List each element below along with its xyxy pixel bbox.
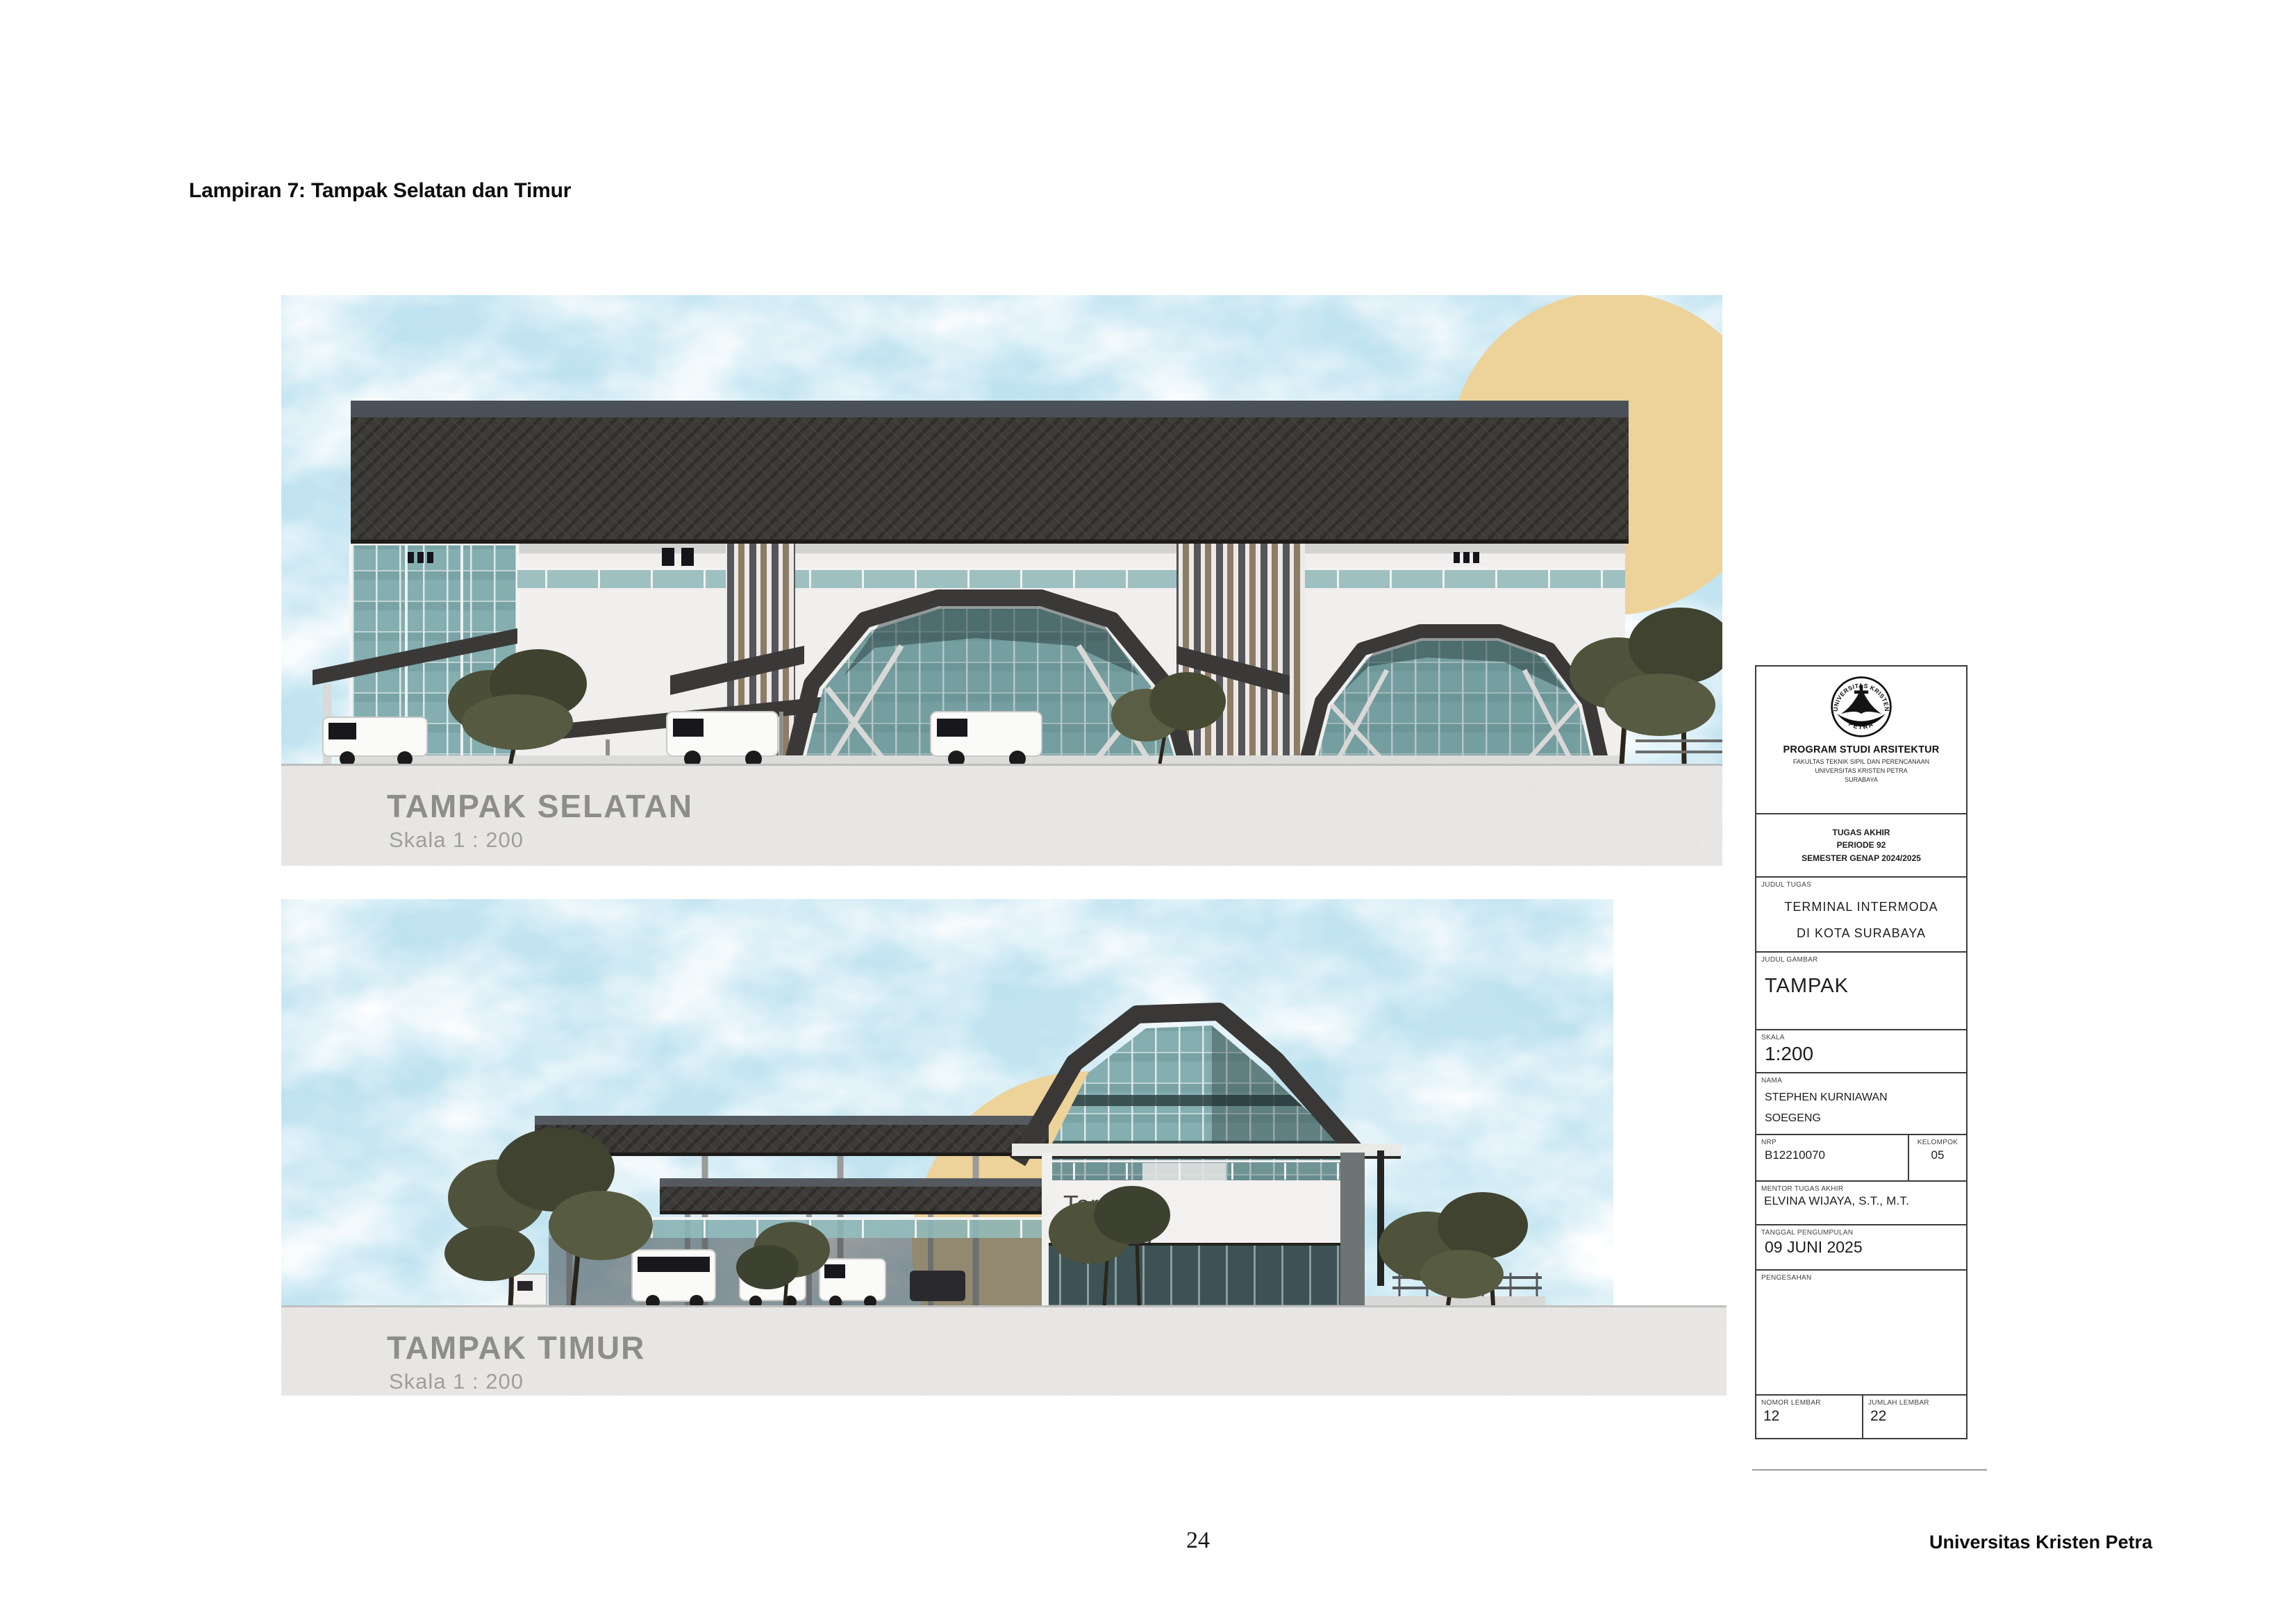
judul-tugas-line-2: DI KOTA SURABAYA xyxy=(1756,921,1966,947)
assignment-cell: TUGAS AKHIR PERIODE 92 SEMESTER GENAP 20… xyxy=(1756,813,1966,876)
pengesahan-label: PENGESAHAN xyxy=(1756,1271,1966,1282)
mentor-cell: MENTOR TUGAS AKHIR ELVINA WIJAYA, S.T., … xyxy=(1756,1180,1966,1224)
nama-cell: NAMA STEPHEN KURNIAWAN SOEGENG xyxy=(1756,1072,1966,1134)
nrp-label: NRP xyxy=(1756,1135,1908,1146)
nama-label: NAMA xyxy=(1756,1073,1966,1085)
nrp-value: B12210070 xyxy=(1765,1148,1908,1162)
footer-university-name: Universitas Kristen Petra xyxy=(1929,1532,2158,1553)
judul-gambar-label: JUDUL GAMBAR xyxy=(1756,953,1966,964)
tanggal-label: TANGGAL PENGUMPULAN xyxy=(1756,1225,1966,1237)
title-block-underline xyxy=(1752,1469,1987,1471)
judul-tugas-label: JUDUL TUGAS xyxy=(1756,878,1966,889)
nomor-lembar-label: NOMOR LEMBAR xyxy=(1756,1396,1862,1407)
south-elevation-drawing: TAMPAK SELATAN Skala 1 : 200 xyxy=(281,295,1722,866)
mentor-value: ELVINA WIJAYA, S.T., M.T. xyxy=(1764,1194,1966,1208)
kelompok-label: KELOMPOK xyxy=(1909,1135,1966,1146)
assignment-line-2: PERIODE 92 xyxy=(1756,839,1966,852)
kelompok-value: 05 xyxy=(1909,1148,1966,1162)
mentor-label: MENTOR TUGAS AKHIR xyxy=(1756,1182,1966,1193)
tanggal-value: 09 JUNI 2025 xyxy=(1765,1238,1966,1257)
pengesahan-cell: PENGESAHAN xyxy=(1756,1269,1966,1394)
judul-gambar-cell: JUDUL GAMBAR TAMPAK xyxy=(1756,951,1966,1029)
tanggal-cell: TANGGAL PENGUMPULAN 09 JUNI 2025 xyxy=(1756,1224,1966,1269)
assignment-line-3: SEMESTER GENAP 2024/2025 xyxy=(1756,852,1966,865)
judul-gambar-value: TAMPAK xyxy=(1765,975,1966,998)
judul-tugas-line-1: TERMINAL INTERMODA xyxy=(1756,894,1966,921)
title-block: UNIVERSITAS KRISTEN PETRA PROGRAM STUDI … xyxy=(1755,665,1968,1439)
page-heading: Lampiran 7: Tampak Selatan dan Timur xyxy=(189,179,571,203)
faculty-line-3: SURABAYA xyxy=(1756,776,1966,785)
east-elevation-drawing: Terminal Bratang xyxy=(281,899,1727,1396)
jumlah-lembar-cell: JUMLAH LEMBAR 22 xyxy=(1862,1396,1966,1438)
east-title: TAMPAK TIMUR xyxy=(387,1330,645,1366)
judul-tugas-cell: JUDUL TUGAS TERMINAL INTERMODA DI KOTA S… xyxy=(1756,876,1966,951)
nomor-lembar-value: 12 xyxy=(1763,1408,1862,1425)
nama-line-2: SOEGENG xyxy=(1765,1108,1966,1129)
faculty-line-2: UNIVERSITAS KRISTEN PETRA xyxy=(1756,767,1966,776)
jumlah-lembar-value: 22 xyxy=(1870,1408,1966,1425)
east-scale: Skala 1 : 200 xyxy=(389,1369,524,1393)
faculty-line-1: FAKULTAS TEKNIK SIPIL DAN PERENCANAAN xyxy=(1756,757,1966,767)
skala-label: SKALA xyxy=(1756,1030,1966,1041)
main-roof xyxy=(351,401,1629,544)
page-number: 24 xyxy=(1174,1527,1222,1554)
skala-value: 1:200 xyxy=(1765,1043,1966,1065)
kelompok-cell: KELOMPOK 05 xyxy=(1908,1135,1966,1180)
south-title: TAMPAK SELATAN xyxy=(387,788,693,824)
title-block-header: UNIVERSITAS KRISTEN PETRA PROGRAM STUDI … xyxy=(1756,667,1966,813)
skala-cell: SKALA 1:200 xyxy=(1756,1029,1966,1072)
south-scale: Skala 1 : 200 xyxy=(389,828,524,852)
nrp-cell: NRP B12210070 xyxy=(1756,1135,1908,1180)
nomor-lembar-cell: NOMOR LEMBAR 12 xyxy=(1756,1396,1862,1438)
universitas-kristen-petra-logo: UNIVERSITAS KRISTEN PETRA xyxy=(1829,675,1893,739)
nama-line-1: STEPHEN KURNIAWAN xyxy=(1765,1087,1966,1108)
program-title: PROGRAM STUDI ARSITEKTUR xyxy=(1756,744,1966,755)
assignment-line-1: TUGAS AKHIR xyxy=(1756,826,1966,839)
jumlah-lembar-label: JUMLAH LEMBAR xyxy=(1863,1396,1966,1407)
